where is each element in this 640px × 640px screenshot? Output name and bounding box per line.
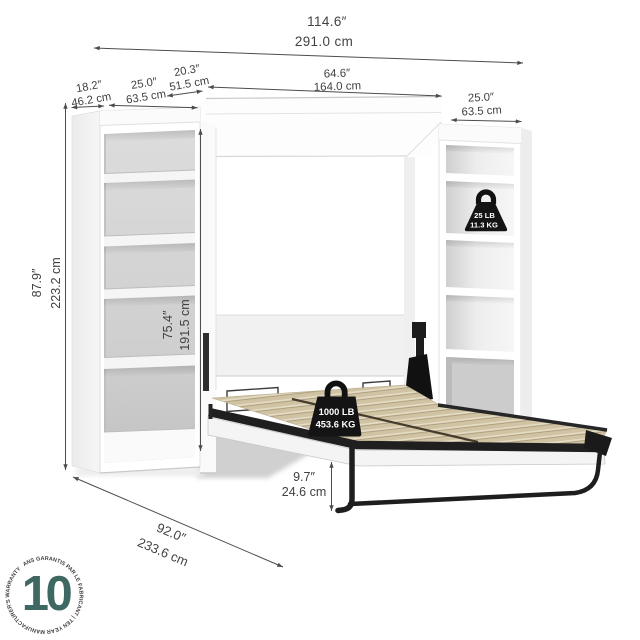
svg-text:63.5 cm: 63.5 cm (461, 104, 502, 118)
svg-text:24.6 cm: 24.6 cm (282, 485, 326, 499)
svg-text:223.2 cm: 223.2 cm (49, 257, 63, 308)
svg-text:453.6 KG: 453.6 KG (316, 420, 356, 430)
svg-text:114.6″: 114.6″ (307, 14, 347, 29)
svg-text:25 LB: 25 LB (474, 211, 495, 220)
svg-text:191.5 cm: 191.5 cm (178, 299, 192, 350)
svg-text:87.9″: 87.9″ (30, 268, 44, 297)
svg-text:11.3 KG: 11.3 KG (470, 221, 498, 230)
svg-text:1000 LB: 1000 LB (319, 407, 355, 417)
svg-text:164.0 cm: 164.0 cm (314, 80, 362, 94)
svg-text:9.7″: 9.7″ (293, 470, 315, 484)
svg-text:291.0 cm: 291.0 cm (295, 34, 353, 49)
svg-text:10: 10 (22, 567, 72, 621)
svg-text:64.6″: 64.6″ (324, 68, 351, 81)
svg-text:75.4″: 75.4″ (161, 310, 175, 339)
svg-text:25.0″: 25.0″ (468, 91, 495, 104)
